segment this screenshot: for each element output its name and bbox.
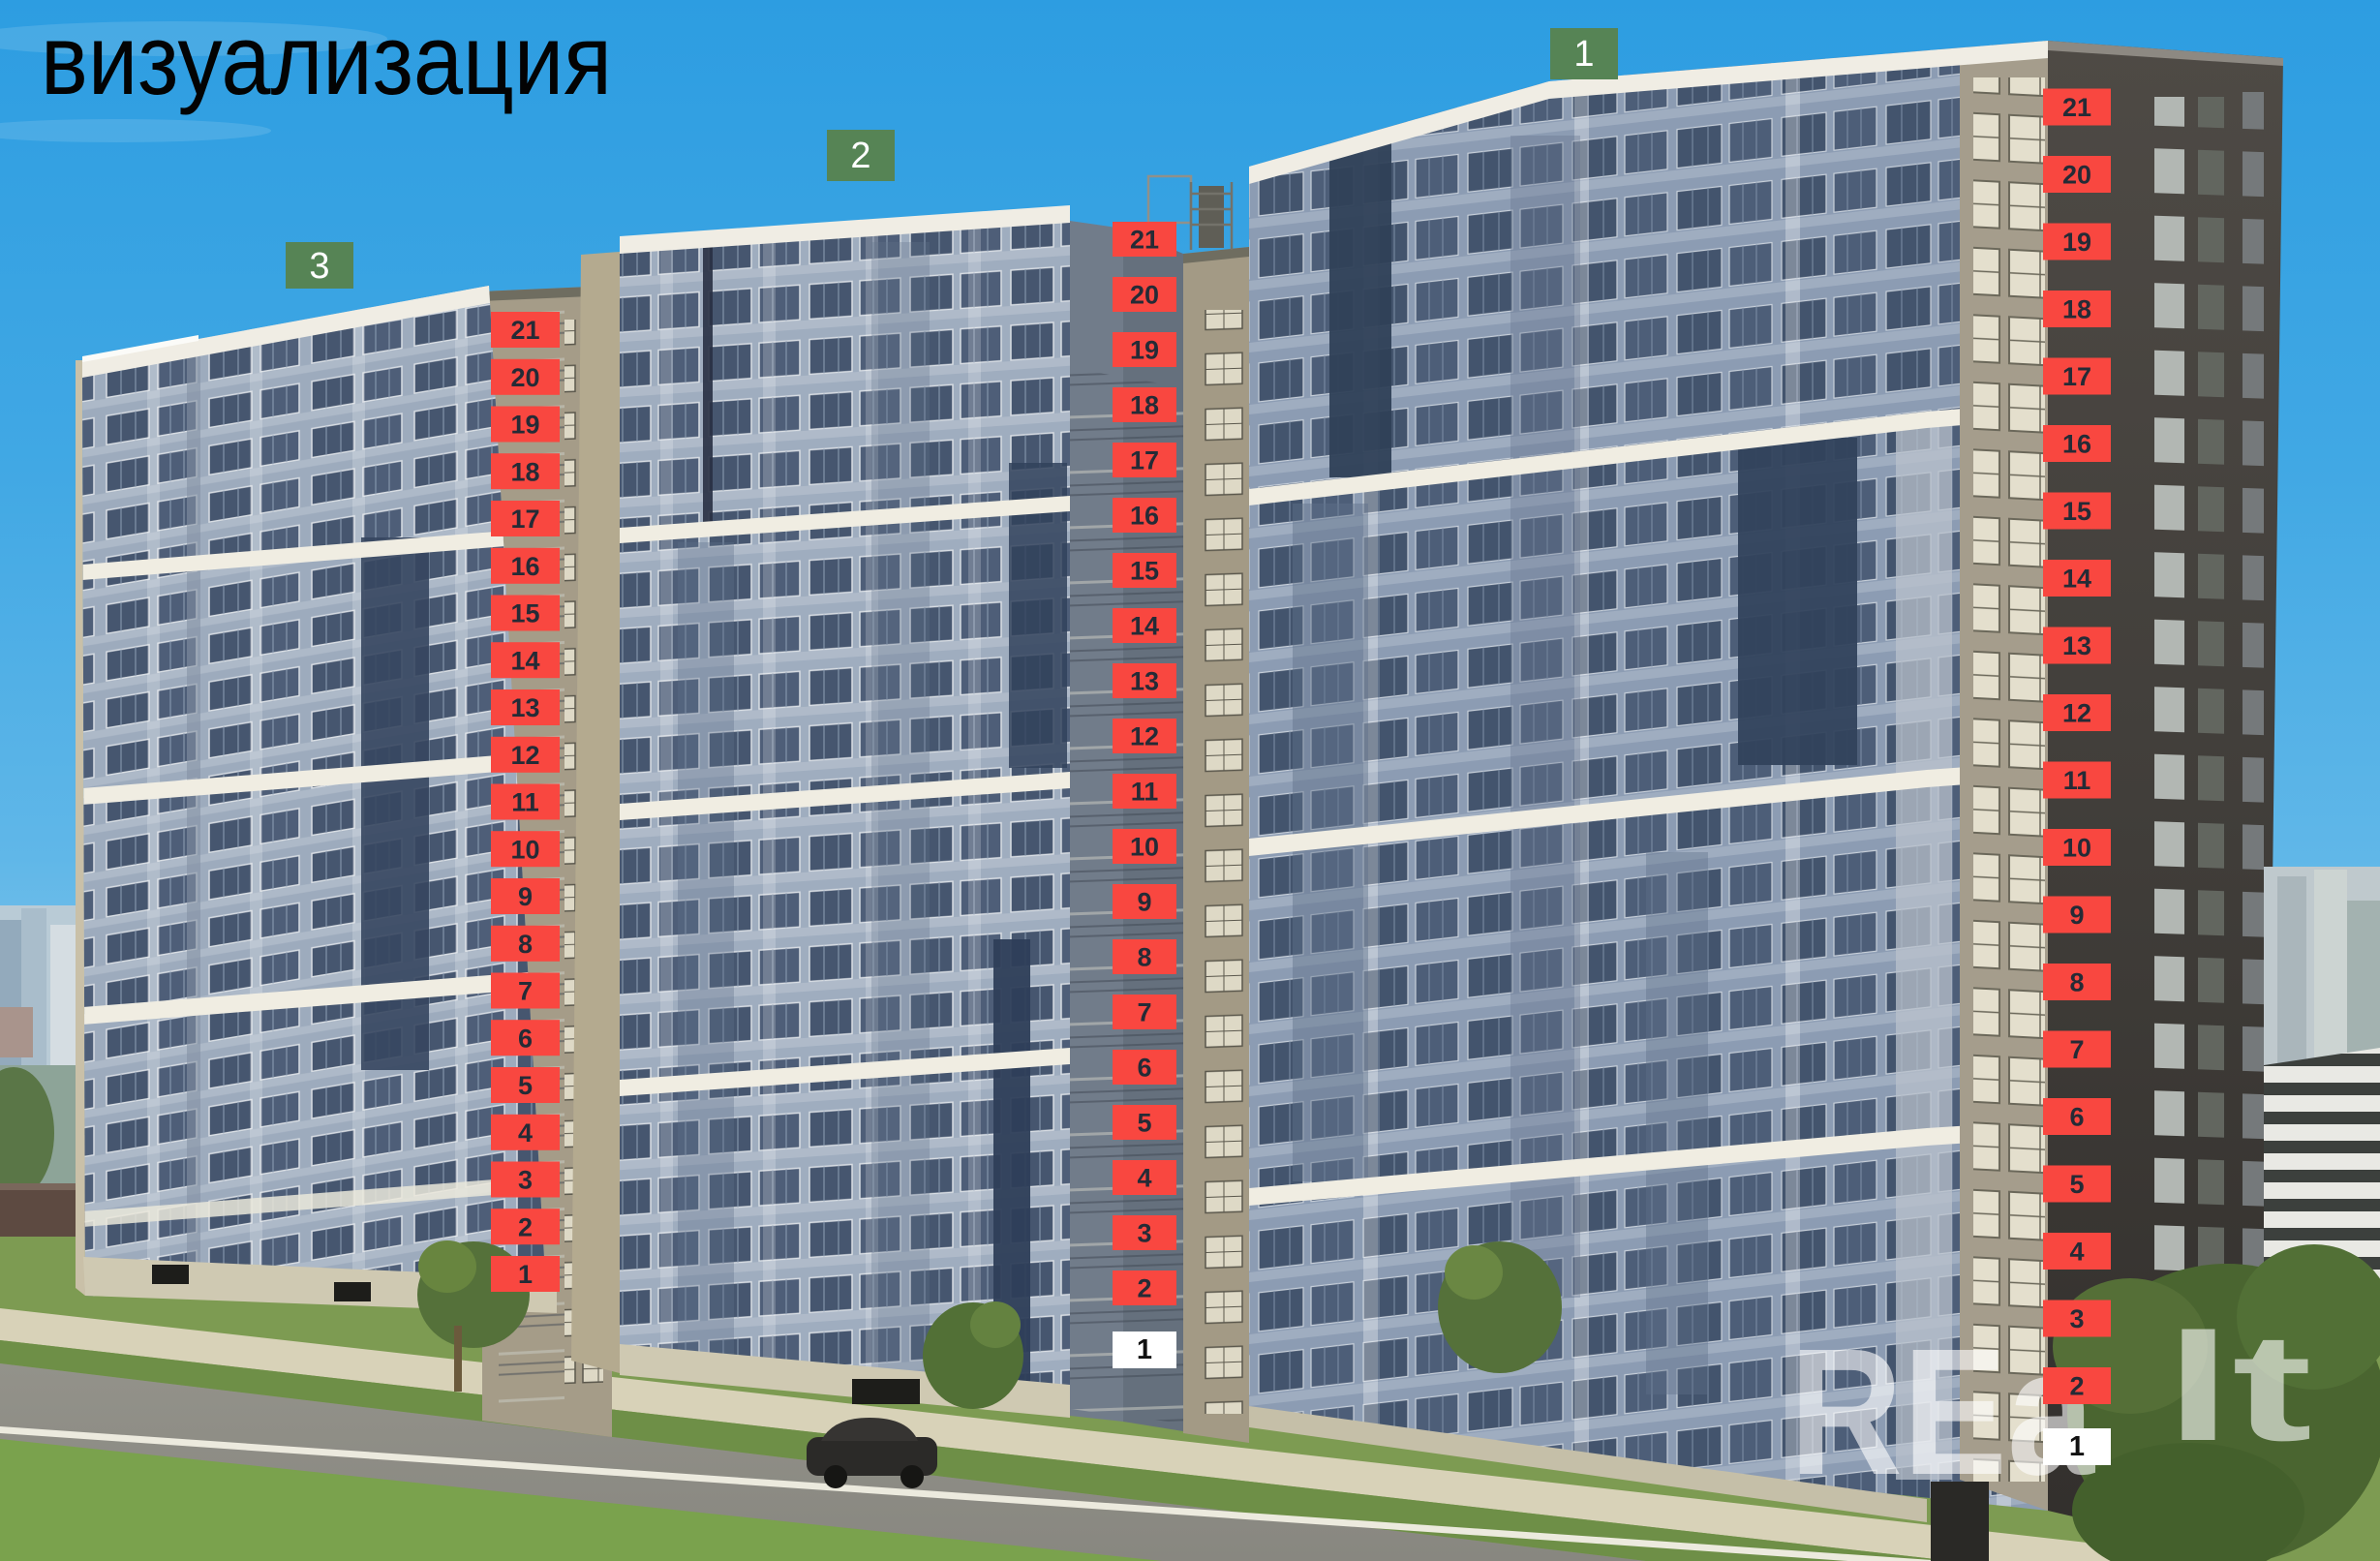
svg-text:16: 16	[1130, 502, 1159, 531]
svg-text:12: 12	[1130, 722, 1159, 751]
svg-text:9: 9	[1137, 888, 1151, 917]
svg-text:9: 9	[2069, 901, 2084, 930]
svg-text:11: 11	[1131, 778, 1159, 807]
svg-text:4: 4	[518, 1118, 533, 1148]
svg-text:21: 21	[1130, 226, 1159, 255]
svg-text:lt: lt	[2165, 1302, 2312, 1473]
svg-text:9: 9	[518, 882, 533, 911]
svg-text:7: 7	[518, 977, 533, 1006]
svg-text:11: 11	[511, 788, 539, 817]
svg-text:12: 12	[510, 741, 539, 770]
svg-text:20: 20	[1130, 281, 1159, 310]
svg-text:15: 15	[1130, 557, 1159, 586]
svg-text:5: 5	[518, 1071, 533, 1100]
svg-text:14: 14	[510, 647, 539, 676]
svg-text:3: 3	[309, 246, 329, 287]
svg-text:20: 20	[2062, 161, 2091, 190]
svg-text:14: 14	[2062, 565, 2091, 594]
svg-text:18: 18	[1130, 391, 1159, 420]
svg-text:4: 4	[2069, 1238, 2084, 1267]
svg-text:5: 5	[2069, 1170, 2084, 1199]
svg-text:13: 13	[2062, 631, 2091, 660]
svg-text:13: 13	[510, 693, 539, 722]
svg-text:17: 17	[1130, 446, 1159, 475]
svg-text:10: 10	[2062, 834, 2091, 863]
svg-text:15: 15	[2062, 497, 2091, 526]
svg-text:21: 21	[2062, 93, 2091, 122]
svg-text:6: 6	[1137, 1054, 1151, 1083]
svg-text:4: 4	[1137, 1164, 1151, 1193]
svg-text:1: 1	[1573, 34, 1594, 75]
svg-text:17: 17	[510, 505, 539, 534]
svg-text:21: 21	[510, 316, 539, 345]
svg-text:2: 2	[850, 136, 870, 176]
svg-text:18: 18	[510, 458, 539, 487]
svg-text:8: 8	[518, 930, 533, 959]
svg-text:8: 8	[1137, 943, 1151, 972]
svg-text:16: 16	[2062, 430, 2091, 459]
svg-text:REa: REa	[1789, 1312, 2095, 1513]
svg-text:6: 6	[2069, 1103, 2084, 1132]
svg-text:7: 7	[2069, 1035, 2084, 1064]
svg-text:6: 6	[518, 1025, 533, 1054]
svg-text:19: 19	[1130, 336, 1159, 365]
svg-text:2: 2	[1137, 1274, 1151, 1303]
svg-text:7: 7	[1137, 998, 1151, 1027]
svg-text:19: 19	[510, 411, 539, 440]
svg-text:1: 1	[1137, 1334, 1152, 1365]
svg-text:5: 5	[1137, 1109, 1151, 1138]
svg-text:16: 16	[510, 552, 539, 581]
svg-text:8: 8	[2069, 968, 2084, 997]
svg-text:12: 12	[2062, 699, 2091, 728]
svg-text:2: 2	[518, 1213, 533, 1242]
svg-text:15: 15	[510, 599, 539, 628]
svg-text:17: 17	[2062, 362, 2091, 391]
svg-text:14: 14	[1130, 612, 1159, 641]
svg-text:10: 10	[510, 836, 539, 865]
svg-text:3: 3	[2069, 1304, 2084, 1333]
svg-text:1: 1	[2069, 1431, 2085, 1462]
svg-text:18: 18	[2062, 295, 2091, 324]
svg-text:13: 13	[1130, 667, 1159, 696]
svg-text:1: 1	[518, 1260, 533, 1289]
svg-text:2: 2	[2069, 1372, 2084, 1401]
svg-text:визуализация: визуализация	[41, 4, 612, 115]
svg-text:3: 3	[518, 1166, 533, 1195]
svg-text:20: 20	[510, 363, 539, 392]
svg-text:10: 10	[1130, 833, 1159, 862]
svg-text:19: 19	[2062, 228, 2091, 257]
svg-text:11: 11	[2063, 766, 2091, 795]
svg-text:3: 3	[1137, 1219, 1151, 1248]
